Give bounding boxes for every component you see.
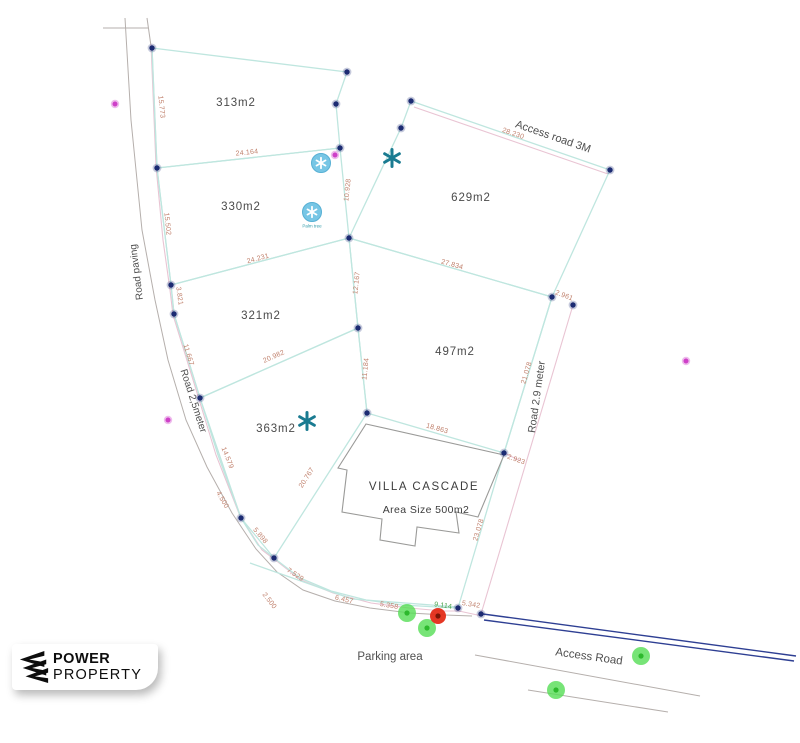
- site-plan: 313m2330m2629m2321m2497m2363m215.77315.5…: [0, 0, 800, 743]
- survey-node: [154, 165, 159, 170]
- parcel-polygon-321m2: [171, 238, 358, 398]
- survey-node: [171, 311, 176, 316]
- survey-node: [149, 45, 154, 50]
- power-property-logo-icon: [18, 650, 50, 684]
- survey-node: [364, 410, 369, 415]
- survey-node: [549, 294, 554, 299]
- road-edge-line: [147, 18, 151, 46]
- green-marker: [553, 687, 558, 692]
- parcel-polygon-497m2: [349, 238, 552, 453]
- magenta-marker: [166, 418, 171, 423]
- survey-node: [337, 145, 342, 150]
- survey-node: [346, 235, 351, 240]
- magenta-marker: [684, 359, 689, 364]
- survey-node: [271, 555, 276, 560]
- cadastral-boundary-line: [151, 44, 482, 616]
- villa-building-outline: [338, 424, 504, 546]
- green-marker: [424, 625, 429, 630]
- parcel-edge-line: [250, 563, 352, 599]
- parcel-polygon-363m2: [200, 328, 367, 558]
- survey-node: [455, 605, 460, 610]
- parcel-polygon-629m2: [349, 101, 610, 297]
- logo-brand-property: PROPERTY: [53, 668, 142, 683]
- survey-node: [478, 611, 483, 616]
- survey-node: [344, 69, 349, 74]
- green-marker: [404, 610, 409, 615]
- cadastral-boundary-line: [414, 107, 608, 174]
- survey-node: [197, 395, 202, 400]
- survey-node: [570, 302, 575, 307]
- logo-brand-power: POWER: [53, 652, 142, 667]
- survey-node: [501, 450, 506, 455]
- magenta-marker: [113, 102, 118, 107]
- logo-card: POWER PROPERTY: [12, 644, 158, 690]
- survey-node: [168, 282, 173, 287]
- survey-node: [355, 325, 360, 330]
- survey-node: [238, 515, 243, 520]
- road-edge-line: [475, 655, 700, 696]
- red-marker: [435, 613, 440, 618]
- logo-text: POWER PROPERTY: [53, 652, 142, 682]
- survey-node: [408, 98, 413, 103]
- survey-node: [398, 125, 403, 130]
- site-plan-drawing: [0, 0, 800, 743]
- magenta-marker: [333, 153, 338, 158]
- survey-node: [607, 167, 612, 172]
- green-marker: [638, 653, 643, 658]
- survey-node: [333, 101, 338, 106]
